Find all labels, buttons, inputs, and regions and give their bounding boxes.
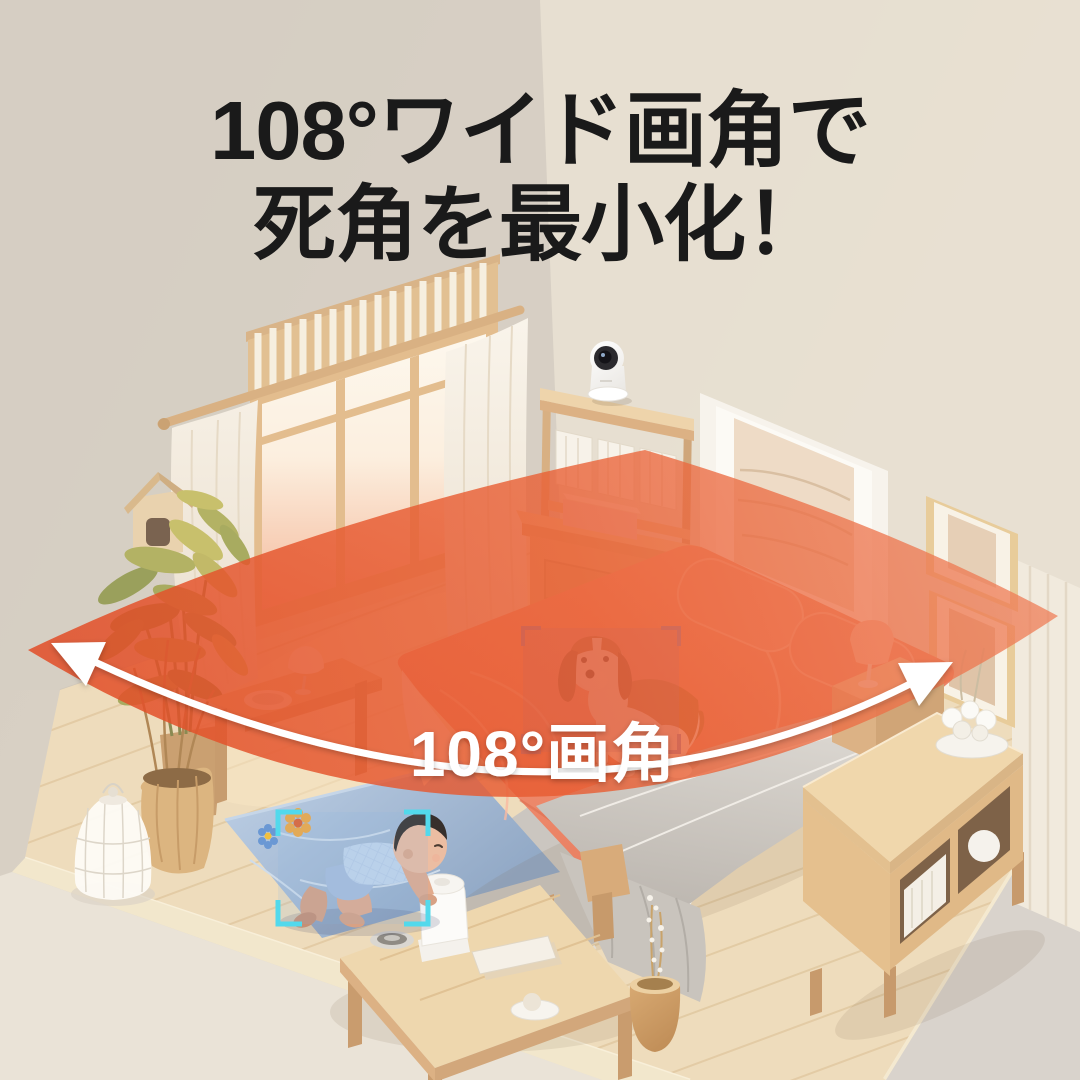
headline-line-1: 108°ワイド画角で	[0, 84, 1080, 178]
baby-detection-box	[278, 812, 428, 924]
headline: 108°ワイド画角で 死角を最小化！	[0, 84, 1080, 272]
bed-leg	[580, 844, 630, 902]
camera-base	[588, 387, 628, 401]
headline-line-2: 死角を最小化！	[0, 178, 1080, 272]
camera-lens	[599, 351, 612, 364]
fov-label: 108°画角	[410, 718, 676, 790]
